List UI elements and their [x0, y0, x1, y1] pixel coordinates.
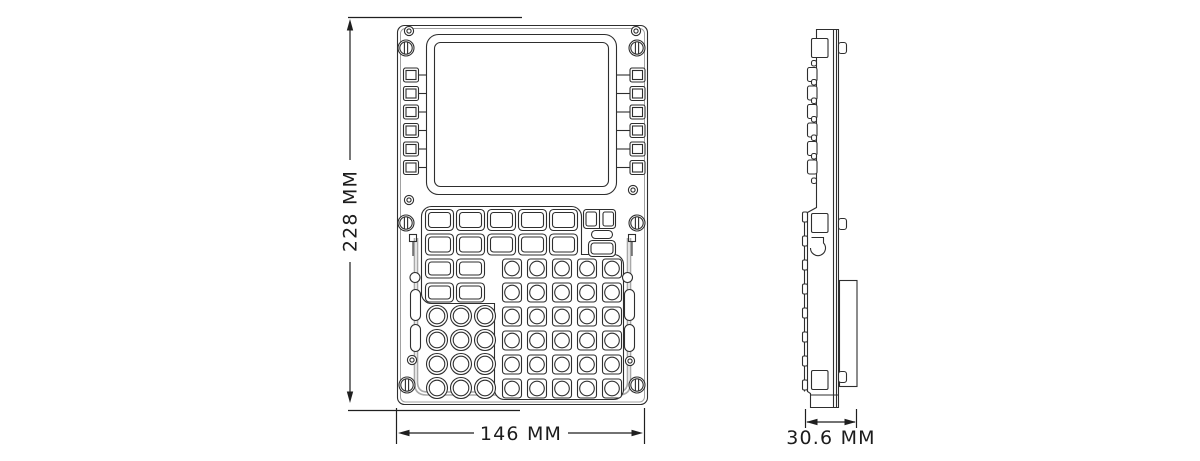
function-key: [457, 210, 485, 231]
display-screen: [435, 43, 609, 187]
rear-housing: [840, 281, 858, 387]
screw-icon: [407, 355, 416, 364]
function-key: [426, 210, 454, 231]
alpha-key: [603, 259, 622, 278]
function-key: [426, 259, 454, 278]
line-select-key: [630, 142, 645, 156]
wide-rounded-key: [589, 241, 616, 257]
arrow-down-icon: [347, 392, 353, 404]
alpha-key: [553, 355, 572, 374]
alpha-key: [528, 355, 547, 374]
line-select-key: [630, 87, 645, 101]
round-key: [475, 306, 496, 327]
function-key: [519, 234, 547, 255]
line-select-key: [404, 105, 419, 119]
front-view: [398, 26, 648, 405]
line-select-key: [630, 105, 645, 119]
latch-top: [812, 39, 829, 58]
arrow-up-icon: [347, 19, 353, 31]
depth-dimension: 30.6 MM: [786, 409, 876, 449]
width-dimension-label: 146 MM: [480, 423, 562, 445]
alpha-key: [578, 355, 597, 374]
alpha-key: [503, 283, 522, 302]
alpha-key: [578, 307, 597, 326]
line-select-key: [630, 68, 645, 82]
function-key: [457, 283, 485, 302]
function-key: [457, 234, 485, 255]
arrow-left-icon: [806, 419, 818, 425]
round-key: [451, 306, 472, 327]
slotted-screw-icon: [629, 377, 645, 393]
round-key: [427, 306, 448, 327]
round-key: [475, 354, 496, 375]
alpha-key: [528, 307, 547, 326]
display: [427, 35, 617, 195]
alpha-key: [553, 307, 572, 326]
alpha-key: [503, 259, 522, 278]
line-select-key: [404, 142, 419, 156]
rear-tab-bottom: [839, 372, 847, 383]
alpha-key: [603, 355, 622, 374]
height-dimension-label: 228 MM: [340, 170, 362, 252]
round-key: [451, 330, 472, 351]
function-key: [488, 234, 516, 255]
alpha-key: [528, 379, 547, 398]
arrow-right-icon: [845, 419, 857, 425]
latch-middle: [812, 214, 829, 233]
arrow-left-icon: [398, 430, 410, 436]
alpha-key: [578, 259, 597, 278]
alpha-key: [603, 379, 622, 398]
alpha-key: [603, 283, 622, 302]
arrow-right-icon: [632, 430, 644, 436]
slotted-screw-icon: [398, 215, 414, 231]
rear-tab-middle: [839, 219, 847, 230]
line-select-key: [404, 68, 419, 82]
alpha-key: [578, 379, 597, 398]
line-select-key: [630, 161, 645, 175]
round-key: [427, 330, 448, 351]
alpha-key: [528, 331, 547, 350]
function-key: [519, 210, 547, 231]
function-key: [488, 210, 516, 231]
alpha-key: [553, 379, 572, 398]
round-key: [427, 354, 448, 375]
round-key: [475, 378, 496, 399]
line-select-key: [630, 124, 645, 138]
side-key-bumps-upper: [808, 61, 818, 184]
slotted-screw-icon: [399, 377, 415, 393]
screw-icon: [628, 185, 637, 194]
alpha-key: [503, 355, 522, 374]
dimension-drawing: 228 MM 146 MM 30.6 MM: [0, 0, 1200, 461]
width-dimension: 146 MM: [397, 408, 645, 445]
slotted-screw-icon: [629, 215, 645, 231]
function-key: [426, 283, 454, 302]
line-select-key: [404, 161, 419, 175]
slotted-screw-icon: [398, 40, 414, 56]
line-select-key: [404, 87, 419, 101]
alpha-key: [503, 379, 522, 398]
split-double-key: [584, 210, 616, 229]
side-view: [803, 30, 858, 408]
alpha-key: [503, 307, 522, 326]
depth-dimension-label: 30.6 MM: [786, 427, 876, 449]
alpha-key: [503, 331, 522, 350]
round-key: [451, 354, 472, 375]
alpha-key: [528, 259, 547, 278]
alpha-key: [578, 331, 597, 350]
screw-icon: [404, 195, 413, 204]
alpha-key: [528, 283, 547, 302]
round-key: [475, 330, 496, 351]
screw-icon: [404, 26, 413, 35]
function-key: [457, 259, 485, 278]
alpha-key: [553, 259, 572, 278]
rear-tab-top: [839, 43, 847, 54]
alpha-key: [553, 283, 572, 302]
alpha-key: [603, 331, 622, 350]
alpha-key: [603, 307, 622, 326]
pill-key: [592, 231, 613, 239]
function-key: [426, 234, 454, 255]
alpha-key: [578, 283, 597, 302]
alpha-key: [553, 331, 572, 350]
line-select-key: [404, 124, 419, 138]
screw-icon: [631, 26, 640, 35]
function-key: [550, 210, 578, 231]
round-key: [451, 378, 472, 399]
slotted-screw-icon: [629, 40, 645, 56]
latch-bottom: [812, 371, 829, 390]
round-key: [427, 378, 448, 399]
screw-icon: [625, 356, 634, 365]
function-key: [550, 234, 578, 255]
